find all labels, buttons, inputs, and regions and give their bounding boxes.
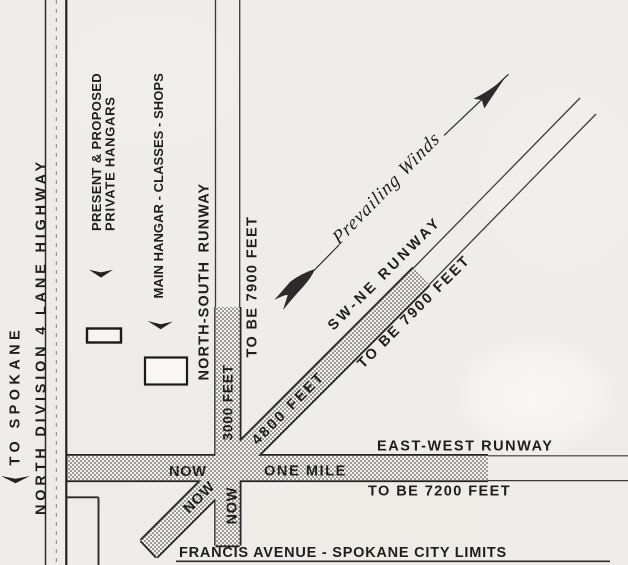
svg-text:TO BE 7200 FEET: TO BE 7200 FEET: [368, 484, 511, 500]
svg-text:NOW: NOW: [225, 487, 241, 525]
svg-text:3000 FEET: 3000 FEET: [221, 364, 236, 440]
svg-text:FRANCIS AVENUE - SPOKANE CITY: FRANCIS AVENUE - SPOKANE CITY LIMITS: [179, 545, 507, 561]
svg-text:TO BE 7900 FEET: TO BE 7900 FEET: [245, 216, 261, 358]
svg-text:PRIVATE HANGARS: PRIVATE HANGARS: [103, 96, 118, 231]
svg-text:NORTH-SOUTH RUNWAY: NORTH-SOUTH RUNWAY: [197, 183, 213, 381]
svg-text:NORTH DIVISION 4 LANE HIGHWAY: NORTH DIVISION 4 LANE HIGHWAY: [34, 158, 50, 515]
svg-text:NOW: NOW: [169, 464, 207, 480]
svg-text:EAST-WEST RUNWAY: EAST-WEST RUNWAY: [377, 439, 554, 455]
svg-text:MAIN HANGAR - CLASSES - SHOPS: MAIN HANGAR - CLASSES - SHOPS: [151, 73, 166, 299]
svg-text:TO SPOKANE: TO SPOKANE: [8, 326, 24, 466]
svg-text:ONE MILE: ONE MILE: [264, 463, 347, 479]
